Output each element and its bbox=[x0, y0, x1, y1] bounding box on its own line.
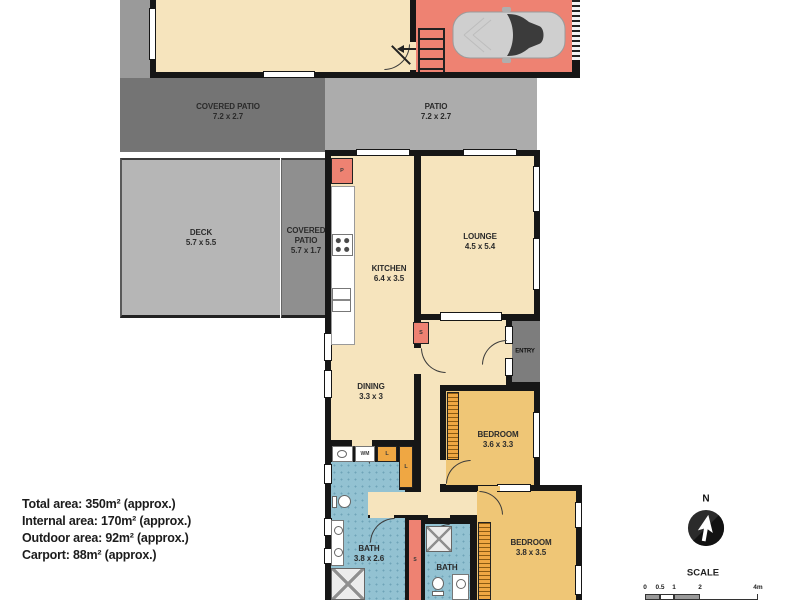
laundry bbox=[331, 462, 399, 490]
room-top bbox=[156, 0, 410, 72]
room-name: BATH bbox=[436, 563, 457, 572]
toilet-icon bbox=[432, 577, 444, 590]
car-icon bbox=[450, 5, 568, 65]
basin-icon bbox=[334, 548, 343, 557]
room-name: BEDROOM bbox=[477, 430, 518, 439]
outdoor-area-text: Outdoor area: 92m² (approx.) bbox=[22, 530, 252, 547]
label-entry: ENTRY bbox=[515, 348, 535, 356]
door-gap bbox=[414, 348, 421, 374]
room-dims: 3.8 x 3.5 bbox=[510, 548, 551, 558]
stairs-arrowhead bbox=[397, 45, 404, 53]
window bbox=[575, 502, 582, 528]
window bbox=[463, 149, 517, 156]
shower-icon bbox=[426, 526, 452, 552]
pantry-label: P bbox=[340, 168, 344, 174]
stove-icon bbox=[332, 234, 353, 256]
scale-tick: 1 bbox=[672, 584, 676, 591]
window bbox=[324, 464, 332, 484]
room-name: KITCHEN bbox=[372, 264, 407, 273]
wardrobe bbox=[478, 522, 491, 600]
room-name: BATH bbox=[358, 544, 379, 553]
stairs-icon bbox=[418, 28, 445, 72]
room-dims: 5.7 x 1.7 bbox=[283, 246, 329, 256]
label-bath-2: BATH bbox=[436, 563, 457, 573]
scale-bar-segment bbox=[645, 594, 660, 600]
window bbox=[356, 149, 410, 156]
label-bedroom-2: BEDROOM 3.8 x 3.5 bbox=[510, 538, 551, 558]
label-covered-patio-side: COVERED PATIO 5.7 x 1.7 bbox=[283, 226, 329, 256]
window bbox=[533, 412, 540, 458]
scale-title: SCALE bbox=[687, 568, 719, 579]
label-bath-1: BATH 3.8 x 2.6 bbox=[354, 544, 384, 564]
scale-tick: 0.5 bbox=[655, 584, 664, 591]
label-dining: DINING 3.3 x 3 bbox=[357, 382, 384, 402]
total-area-text: Total area: 350m² (approx.) bbox=[22, 496, 252, 513]
room-name: DINING bbox=[357, 382, 384, 391]
fridge-icon bbox=[332, 288, 351, 312]
room-dims: 7.2 x 2.7 bbox=[196, 112, 260, 122]
window bbox=[149, 8, 156, 60]
opening-lounge bbox=[440, 312, 502, 321]
label-lounge: LOUNGE 4.5 x 5.4 bbox=[463, 232, 497, 252]
room-dims: 3.6 x 3.3 bbox=[477, 440, 518, 450]
toilet-icon bbox=[338, 495, 351, 508]
room-name: PATIO bbox=[425, 102, 448, 111]
window bbox=[324, 370, 332, 398]
room-dims: 6.4 x 3.5 bbox=[372, 274, 407, 284]
room-dims: 3.8 x 2.6 bbox=[354, 554, 384, 564]
roller-door bbox=[572, 0, 580, 60]
door-gap bbox=[440, 460, 446, 484]
floor-plan: COVERED PATIO 7.2 x 2.7 PATIO 7.2 x 2.7 … bbox=[0, 0, 800, 600]
compass-icon bbox=[687, 509, 725, 547]
label-covered-patio-top: COVERED PATIO 7.2 x 2.7 bbox=[196, 102, 260, 122]
scale-bar-segment bbox=[660, 594, 674, 600]
room-name: LOUNGE bbox=[463, 232, 497, 241]
label-kitchen: KITCHEN 6.4 x 3.5 bbox=[372, 264, 407, 284]
carport-area-text: Carport: 88m² (approx.) bbox=[22, 547, 252, 564]
door-gap bbox=[428, 515, 450, 518]
store-strip-label: S bbox=[413, 557, 416, 563]
toilet-tank bbox=[332, 496, 337, 508]
room-name: BEDROOM bbox=[510, 538, 551, 547]
basin-icon bbox=[456, 579, 466, 589]
store-label: S bbox=[419, 330, 423, 336]
area-summary: Total area: 350m² (approx.) Internal are… bbox=[22, 496, 252, 564]
room-name: ENTRY bbox=[515, 348, 535, 354]
door-gap bbox=[410, 42, 416, 70]
room-dims: 5.7 x 5.5 bbox=[186, 238, 216, 248]
window bbox=[575, 565, 582, 595]
north-label: N bbox=[702, 494, 709, 505]
window bbox=[263, 71, 315, 78]
laundry-sink-bowl bbox=[337, 450, 347, 458]
scale-bar-line bbox=[700, 594, 758, 600]
basin-icon bbox=[334, 526, 343, 535]
window bbox=[497, 484, 531, 492]
scale-bar-segment bbox=[674, 594, 700, 600]
internal-area-text: Internal area: 170m² (approx.) bbox=[22, 513, 252, 530]
wardrobe bbox=[447, 392, 459, 460]
room-name: COVERED PATIO bbox=[196, 102, 260, 111]
washing-machine-label: WM bbox=[361, 451, 370, 457]
scale-tick: 2 bbox=[698, 584, 702, 591]
label-patio: PATIO 7.2 x 2.7 bbox=[421, 102, 451, 122]
stairs-arrow bbox=[402, 48, 416, 50]
linen-label: L bbox=[385, 451, 388, 457]
scale-tick: 4m bbox=[753, 584, 762, 591]
room-name: COVERED PATIO bbox=[287, 226, 326, 245]
scale-tick: 0 bbox=[643, 584, 647, 591]
linen-label-2: L bbox=[404, 464, 407, 470]
label-bedroom-1: BEDROOM 3.6 x 3.3 bbox=[477, 430, 518, 450]
label-deck: DECK 5.7 x 5.5 bbox=[186, 228, 216, 248]
room-dims: 7.2 x 2.7 bbox=[421, 112, 451, 122]
window bbox=[533, 238, 540, 290]
kitchen-counter bbox=[331, 186, 355, 345]
toilet-tank bbox=[432, 591, 444, 596]
room-dims: 3.3 x 3 bbox=[357, 392, 384, 402]
room-name: DECK bbox=[190, 228, 212, 237]
room-dims: 4.5 x 5.4 bbox=[463, 242, 497, 252]
side-path bbox=[120, 0, 150, 78]
shower-icon bbox=[331, 568, 365, 600]
window bbox=[533, 166, 540, 212]
